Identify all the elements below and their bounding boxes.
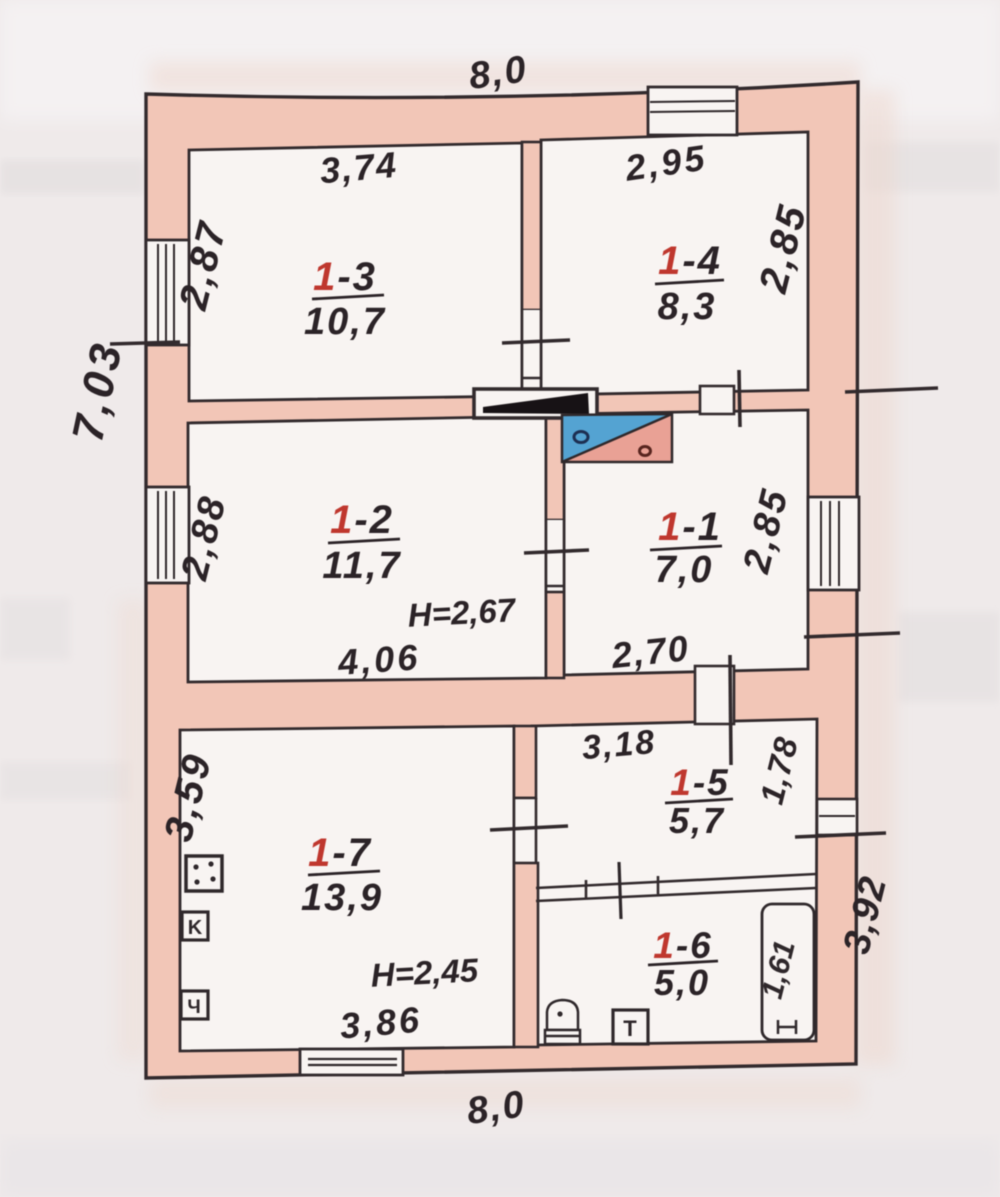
- svg-text:T: T: [623, 1016, 637, 1041]
- svg-text:1-7: 1-7: [308, 831, 372, 875]
- svg-text:4,06: 4,06: [336, 636, 422, 683]
- svg-text:5,0: 5,0: [654, 962, 710, 1003]
- svg-text:11,7: 11,7: [322, 545, 401, 587]
- svg-text:8,0: 8,0: [464, 1083, 528, 1133]
- svg-text:3,74: 3,74: [318, 144, 399, 192]
- svg-text:1-2: 1-2: [330, 498, 394, 542]
- svg-text:2,70: 2,70: [609, 627, 692, 676]
- svg-text:K: K: [188, 917, 203, 939]
- svg-text:3,18: 3,18: [580, 723, 657, 767]
- svg-text:10,7: 10,7: [304, 301, 386, 343]
- svg-text:1-1: 1-1: [658, 505, 722, 549]
- svg-text:1-6: 1-6: [653, 925, 712, 966]
- svg-text:7,0: 7,0: [655, 549, 714, 591]
- svg-text:8,0: 8,0: [466, 48, 530, 98]
- svg-text:H=2,45: H=2,45: [370, 951, 480, 994]
- svg-text:5,7: 5,7: [669, 800, 725, 841]
- svg-text:Ч: Ч: [187, 997, 200, 1018]
- svg-text:13,9: 13,9: [301, 877, 383, 919]
- svg-text:3,86: 3,86: [338, 999, 423, 1047]
- svg-text:H=2,67: H=2,67: [407, 591, 518, 634]
- svg-text:1-5: 1-5: [670, 762, 729, 803]
- svg-text:8,3: 8,3: [658, 286, 717, 328]
- svg-text:1-3: 1-3: [313, 255, 377, 299]
- svg-text:1-4: 1-4: [658, 239, 722, 283]
